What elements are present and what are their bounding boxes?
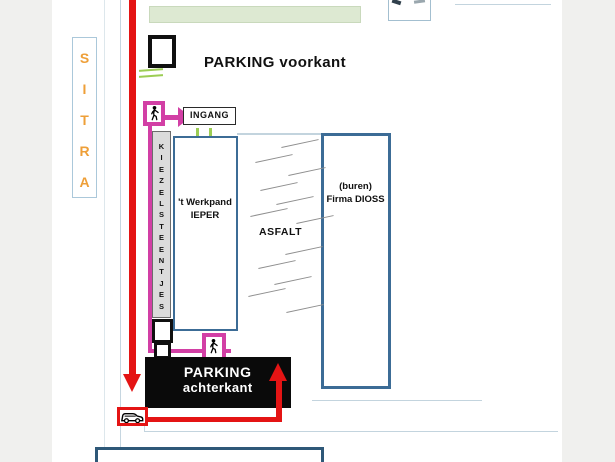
car-start-marker [117,407,149,427]
pedestrian-icon [148,105,161,122]
boundary-line-horizontal-mid [312,400,482,401]
boundary-line-horizontal-top [455,4,551,5]
parking-front-label: PARKING voorkant [204,54,346,71]
boundary-line-vertical-left [104,0,105,447]
front-parking-zone-strip [149,6,361,23]
red-route-line-up [276,381,283,421]
boundary-line-between-buildings [237,133,322,135]
asfalt-area-label: ASFALT [259,226,302,238]
street-sign-sitra: S I T R A [72,37,97,198]
red-route-arrowhead-down [123,374,141,392]
building-firma-dioss: (buren) Firma DIOSS [321,133,391,389]
red-route-line-horizontal [148,417,282,423]
car-icon [120,410,145,423]
gravel-path-kiezelsteentjes: K I E Z E L S T E E N T J E S [152,131,171,318]
red-route-arrowhead-up [269,363,287,381]
building-bottom-cutoff [95,447,324,462]
building-werkpand-ieper: 't Werkpand IEPER [173,136,238,331]
pedestrian-marker-front [143,101,165,126]
map-canvas: S I T R A PARKING voorkant INGANG K I E … [0,0,615,462]
pink-route-arrow-shaft [164,115,179,120]
red-route-line-vertical [129,0,136,374]
back-door-icon-upper [152,319,174,343]
ingang-sign: INGANG [183,107,236,125]
boundary-line-vertical-road [120,0,121,447]
boundary-line-horizontal-bottom [144,431,558,432]
pedestrian-icon [207,338,220,355]
parking-back-line2: achterkant [145,380,291,395]
building-entrance-icon [148,35,176,68]
